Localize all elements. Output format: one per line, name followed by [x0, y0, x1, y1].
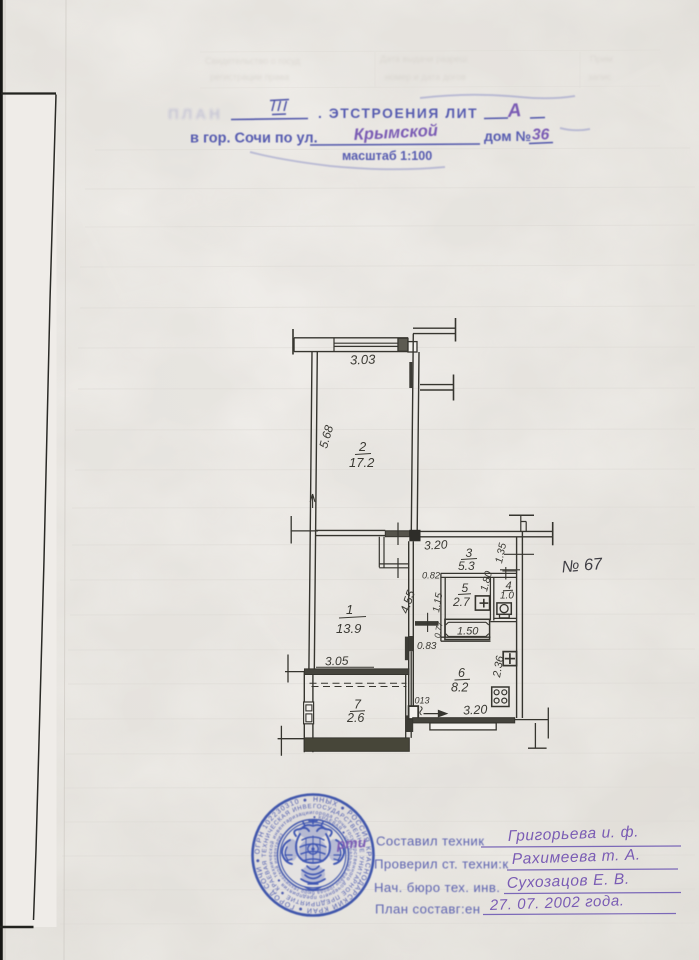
svg-text:5: 5	[462, 581, 469, 595]
svg-text:6: 6	[458, 666, 465, 680]
svg-text:013: 013	[415, 696, 430, 706]
svg-text:2.6: 2.6	[346, 711, 364, 725]
svg-text:1.0: 1.0	[500, 591, 514, 602]
svg-text:3.03: 3.03	[350, 352, 377, 368]
svg-text:8.2: 8.2	[451, 681, 468, 695]
svg-text:3.05: 3.05	[325, 654, 349, 669]
svg-text:0.82: 0.82	[422, 571, 441, 581]
svg-text:1.50: 1.50	[457, 626, 479, 638]
svg-text:Прим: Прим	[590, 54, 613, 64]
svg-text:3.20: 3.20	[424, 537, 448, 552]
svg-text:0.83: 0.83	[417, 641, 437, 652]
svg-text:36: 36	[532, 127, 550, 144]
svg-text:5.3: 5.3	[458, 559, 475, 573]
svg-text:3: 3	[466, 546, 473, 560]
svg-text:17.2: 17.2	[349, 455, 375, 470]
svg-text:Свидетельство о госуд: Свидетельство о госуд	[205, 56, 301, 66]
svg-text:ПЛАН: ПЛАН	[168, 106, 223, 123]
svg-text:Нач. бюро тех. инв.: Нач. бюро тех. инв.	[374, 880, 500, 895]
svg-text:запис: запис	[588, 72, 612, 82]
svg-text:3.20: 3.20	[463, 702, 488, 717]
svg-text:Дата выдачи разреш: Дата выдачи разреш	[380, 54, 467, 64]
svg-text:2: 2	[358, 439, 367, 454]
svg-text:7: 7	[354, 698, 362, 712]
svg-text:масштаб 1:100: масштаб 1:100	[342, 149, 432, 163]
svg-text:рти: рти	[335, 834, 367, 852]
svg-text:№ 67: № 67	[561, 555, 604, 577]
svg-text:13.9: 13.9	[336, 621, 361, 636]
svg-text:2.7: 2.7	[452, 595, 471, 609]
svg-text:План составг:ен: План составг:ен	[375, 902, 480, 917]
svg-text:1: 1	[346, 602, 353, 617]
svg-text:Проверил ст. техни:к: Проверил ст. техни:к	[374, 857, 509, 872]
svg-text:в гор. Сочи по ул.: в гор. Сочи по ул.	[190, 131, 318, 147]
svg-text:дом №: дом №	[484, 128, 531, 144]
svg-text:. ЭТСТРОЕНИЯ ЛИТ: . ЭТСТРОЕНИЯ ЛИТ	[318, 106, 478, 121]
svg-text:регистрации права: регистрации права	[210, 72, 289, 82]
svg-text:Составил техник: Составил техник	[376, 834, 484, 849]
svg-text:номер и дата догов: номер и дата догов	[385, 72, 466, 82]
svg-text:А: А	[506, 100, 522, 122]
